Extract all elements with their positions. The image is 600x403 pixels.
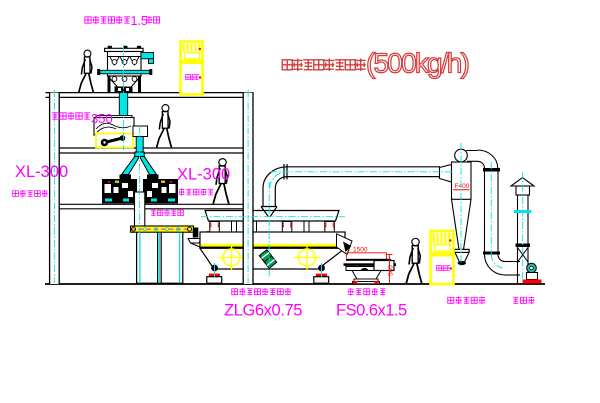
svg-text:FS0.6x1.5: FS0.6x1.5	[336, 302, 407, 320]
svg-text:540: 540	[388, 265, 395, 276]
svg-text:ZLG6x0.75: ZLG6x0.75	[224, 302, 302, 320]
svg-text:1.5: 1.5	[131, 14, 148, 28]
svg-text:XL-300: XL-300	[15, 163, 68, 181]
svg-text:XL-300: XL-300	[177, 166, 230, 184]
svg-text:F400: F400	[455, 183, 470, 190]
svg-text:(500kg/h): (500kg/h)	[366, 48, 469, 79]
svg-text:350: 350	[91, 111, 113, 126]
svg-text:1500: 1500	[353, 247, 368, 254]
